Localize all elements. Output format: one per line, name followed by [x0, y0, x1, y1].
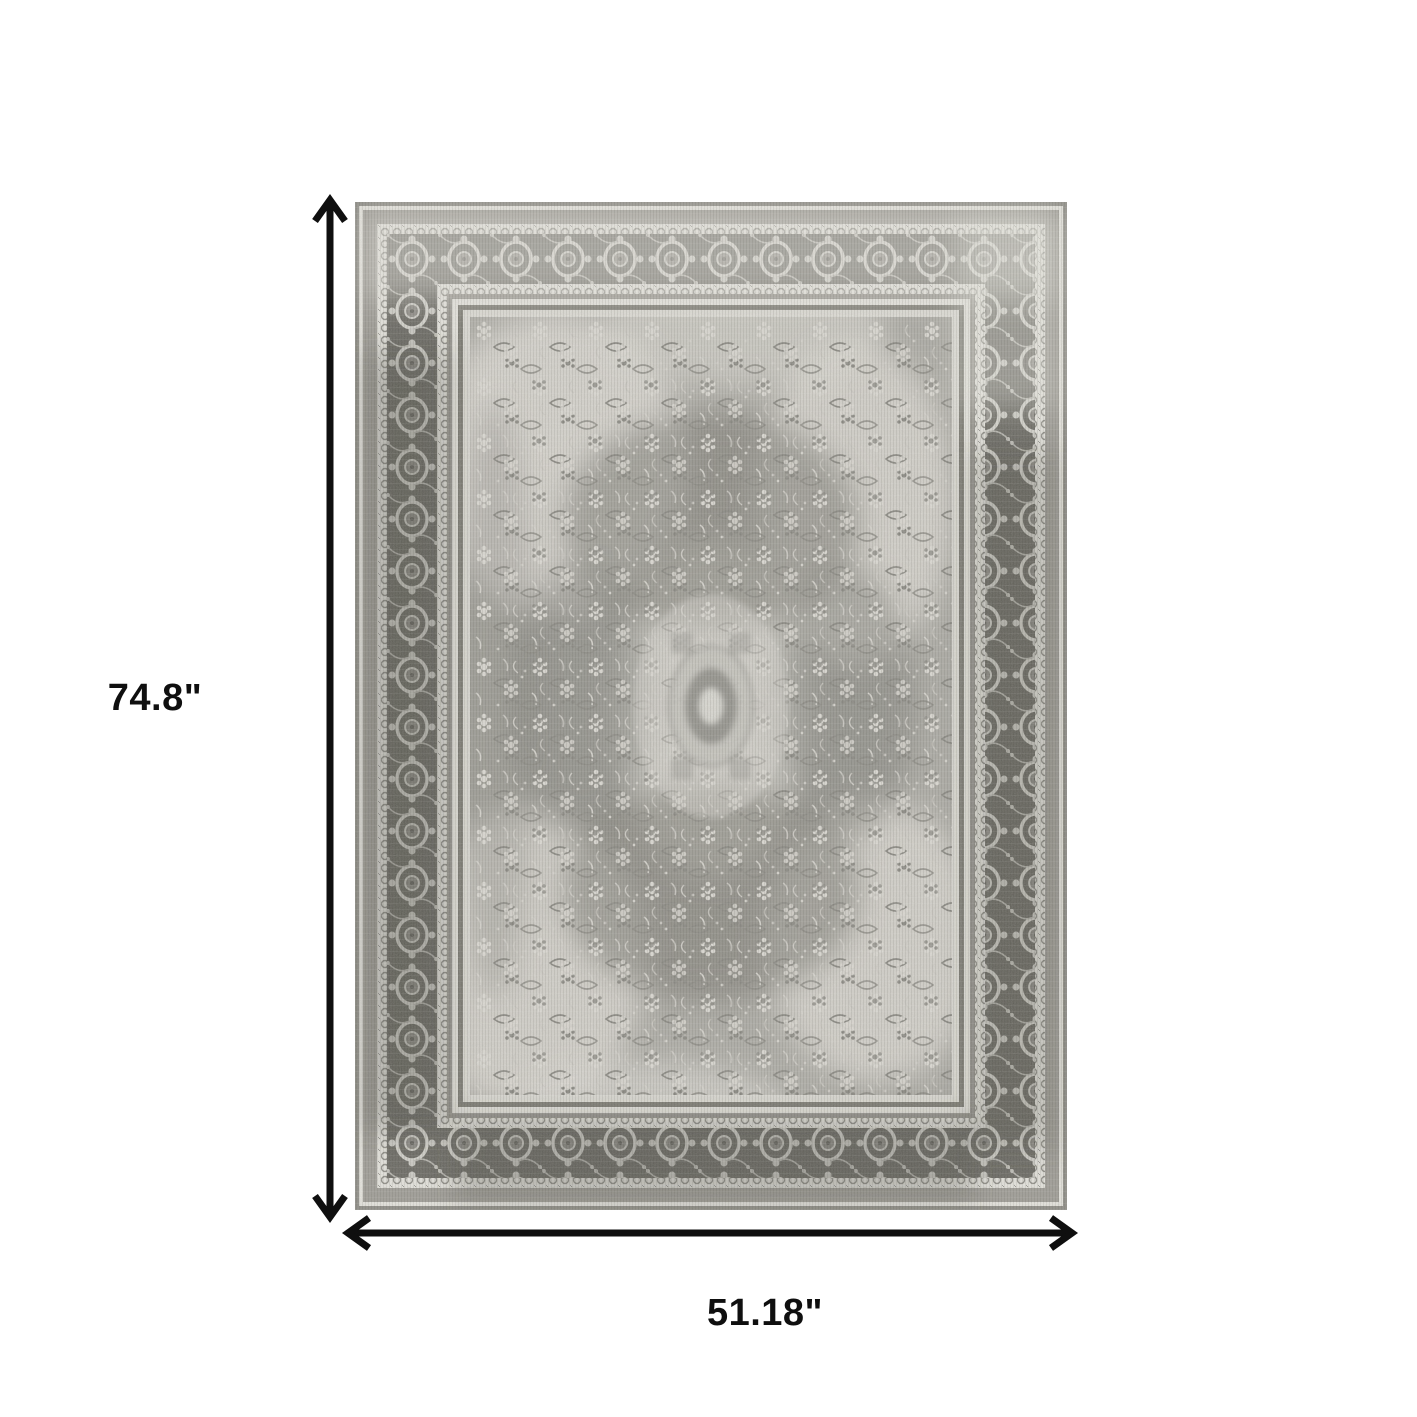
rug-image — [355, 202, 1067, 1210]
arrowhead-right-icon — [1051, 1218, 1072, 1248]
arrowhead-up-icon — [315, 200, 345, 221]
height-dimension-arrow — [315, 200, 345, 1217]
arrowhead-left-icon — [348, 1218, 369, 1248]
width-dimension-label: 51.18" — [655, 1293, 875, 1335]
arrowhead-down-icon — [315, 1196, 345, 1217]
product-dimension-figure: 74.8" 51.18" — [0, 0, 1417, 1417]
height-dimension-label: 74.8" — [45, 678, 265, 720]
width-dimension-arrow — [348, 1218, 1072, 1248]
